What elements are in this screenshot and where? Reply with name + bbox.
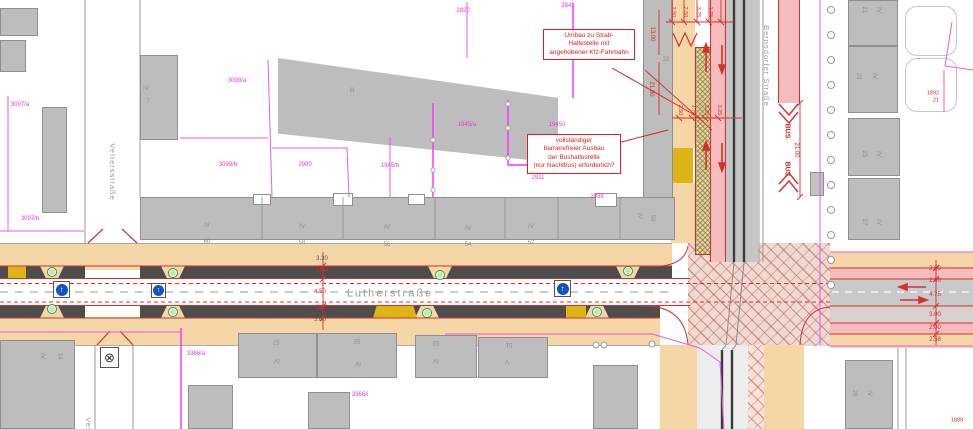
sidewalk-east-south [830, 334, 973, 348]
tree-ring [827, 156, 835, 164]
building [415, 335, 477, 378]
building-storeys: IV [274, 357, 280, 363]
dim-label: 2.00 [316, 305, 328, 311]
building-number: 23 [855, 73, 861, 80]
building-storeys: IV [433, 357, 439, 363]
building-number: 25 [861, 151, 867, 158]
building-number: 7 [146, 99, 149, 105]
building-number: 54 [465, 242, 472, 248]
building-notch [253, 194, 271, 205]
building-storeys: IV [875, 151, 881, 157]
dim-label: 21.00 [648, 81, 654, 96]
bus-shelter [810, 172, 824, 196]
parcel-label: 3097/b [21, 216, 39, 222]
dim-label-bus-length: 21.00 [793, 142, 799, 157]
building-number: 50 [649, 215, 655, 222]
building [0, 8, 38, 36]
dim-label: 3.00 [929, 312, 941, 318]
sidewalk-south-leg-east [764, 345, 804, 429]
tree-ring [827, 81, 835, 89]
annotation-line: Haltestelle mit [547, 40, 631, 48]
building [593, 365, 638, 429]
building [848, 0, 898, 46]
tree [168, 268, 178, 278]
annotation-line: vollständiger [531, 137, 617, 145]
courtyard-path [905, 58, 957, 112]
dim-label: 2.50 [676, 105, 682, 116]
tram-lane [710, 0, 726, 262]
shared-path-icon: ↑ [557, 283, 569, 295]
building-storeys: IV [204, 223, 210, 229]
dim-label: 1.70 [689, 105, 695, 116]
roadway-south-leg [697, 345, 748, 429]
building-number: 27 [861, 219, 867, 226]
building-number: 60 [204, 239, 211, 245]
courtyard-path [905, 6, 957, 56]
parcel-label: 2900 [298, 162, 311, 168]
street-name-lutherstrasse: Lutherstraße [347, 289, 433, 300]
street-name-vettersstrasse: Vettersstraße [108, 143, 116, 201]
parcel-label: 2838 [590, 194, 603, 200]
sidewalk-south-leg-west [660, 345, 697, 429]
traffic-sign-shared-path: ↑ [53, 281, 70, 298]
parcel-label: 2820 [456, 8, 469, 14]
building-storeys: IV [866, 390, 872, 396]
building-number: 56 [384, 242, 391, 248]
parcel-label-red: 21 [933, 98, 939, 104]
building-number: 29 [851, 390, 857, 397]
tree-ring [827, 256, 835, 264]
parcel-label: 1945/i [549, 122, 565, 128]
tree [47, 304, 57, 314]
tactile-paving [8, 266, 26, 278]
tree-ring [827, 56, 835, 64]
tactile-paving [373, 306, 417, 318]
building-storeys: IV [39, 353, 45, 359]
parcel-label: 1945/b [381, 163, 399, 169]
building-number: 58 [299, 240, 306, 246]
traffic-sign-shared-path: ↑ [151, 283, 166, 298]
parcel-label: 2911 [532, 175, 545, 181]
traffic-sign-shared-path: ↑ [554, 280, 571, 297]
building [188, 385, 233, 429]
building-number: 57 [273, 338, 280, 344]
annotation-bus-stop: vollständiger barrierefreier Ausbau der … [527, 134, 621, 174]
dim-label: 2.50 [681, 7, 687, 18]
building-storeys: IV [299, 224, 305, 230]
tree-ring [827, 281, 835, 289]
tree-ring [827, 231, 835, 239]
building-storeys: IV [636, 213, 642, 219]
building-storeys: IV [384, 225, 390, 231]
dim-label: 4.75 [929, 292, 941, 298]
band-east-mid [830, 306, 973, 323]
tree-ring [593, 342, 600, 349]
parcel-label: 1945/a [458, 122, 476, 128]
tree [592, 307, 602, 317]
building [478, 337, 548, 378]
street-name-vettersstrasse-south: Vettersstraße [84, 417, 92, 429]
building [42, 107, 67, 213]
dim-label: 3.60 [314, 317, 326, 323]
parcel-label: 3366/a [187, 351, 205, 357]
building-corner [643, 0, 673, 198]
tram-roadway [726, 0, 758, 262]
tree-ring [827, 181, 835, 189]
shared-path-icon: ↑ [153, 285, 164, 296]
building-notch [408, 194, 425, 205]
building-number: 14 [56, 353, 62, 360]
building [308, 392, 350, 429]
sidewalk-corner-west [671, 0, 695, 148]
tree-ring [649, 341, 656, 348]
sidewalk-east-north [830, 252, 973, 268]
tree-ring [827, 106, 835, 114]
building-number: 51 [506, 341, 513, 347]
parcel-number: 22 [663, 57, 670, 63]
building-storeys: IV [143, 86, 149, 92]
tree [168, 307, 178, 317]
parcel-label-red: 1892 [927, 91, 939, 97]
dim-label: 1.75 [706, 7, 712, 18]
site-plan-canvas: Lutherstraße Vettersstraße Vettersstraße… [0, 0, 973, 429]
building-storeys: IV [355, 360, 361, 366]
dim-label: 2.50 [669, 7, 675, 18]
street-name-bernsdorfer: Bernsdorfer Straße [762, 25, 770, 107]
dim-label: 2.00 [316, 268, 328, 274]
traffic-sign-no-stopping: ⊗ [100, 347, 119, 368]
annotation-line: (nur Nachtbus) erforderlich? [531, 162, 617, 170]
building-storeys: IV [875, 7, 881, 13]
tactile-paving [566, 306, 586, 318]
parcel-label-red: 1889 [951, 418, 963, 424]
tree [422, 308, 432, 318]
building-storeys: V [505, 358, 509, 364]
tree-ring [601, 342, 608, 349]
building-number: 52 [528, 240, 535, 246]
dim-label: 2.50 [929, 266, 941, 272]
bus-lane [778, 0, 800, 103]
annotation-line: angehobener Kfz-Fahrbahn [547, 49, 631, 57]
building-number: 55 [354, 337, 361, 343]
building-storeys: IV [528, 224, 534, 230]
roadway-east [830, 279, 973, 306]
tree-ring [827, 31, 835, 39]
building [0, 40, 26, 72]
parking-strip [140, 266, 672, 278]
building [848, 118, 900, 176]
building [848, 178, 900, 240]
bus-marking: BUS [784, 124, 791, 139]
dim-label: 3.25 [694, 7, 700, 18]
annotation-line: barrierefreier Ausbau [531, 145, 617, 153]
parcel-label: 3097/a [11, 102, 29, 108]
dim-label: 2.00 [929, 278, 941, 284]
dim-label: 2.00 [929, 325, 941, 331]
bus-marking: BUS [784, 162, 791, 177]
no-stopping-icon: ⊗ [104, 350, 115, 366]
building [0, 340, 75, 429]
dim-label: 3.25 [702, 105, 708, 116]
annotation-line: der Bushaltestelle [531, 154, 617, 162]
dim-label: 3.25 [715, 105, 721, 116]
parcel-label: 3099/b [219, 162, 237, 168]
shared-path-icon: ↑ [56, 284, 68, 296]
building-storeys: IV [465, 226, 471, 232]
dim-label: 2.58 [929, 337, 941, 343]
marking-hatch-south [748, 345, 764, 429]
lane-east-north [830, 268, 973, 279]
dim-label: 4.50 [314, 289, 326, 295]
parcel-label: 3099/a [228, 78, 246, 84]
tree [435, 270, 445, 280]
building [140, 55, 178, 140]
building-storeys: IV [871, 73, 877, 79]
parcel-label: 2841 [561, 3, 574, 9]
tree-ring [827, 206, 835, 214]
tree [623, 266, 633, 276]
dim-label: 13.00 [649, 26, 655, 41]
building-number: 53 [433, 339, 440, 345]
tree-ring [827, 6, 835, 14]
dim-label: 3.30 [316, 256, 328, 262]
tree [47, 267, 57, 277]
tree-ring [827, 131, 835, 139]
tactile-paving [672, 148, 693, 183]
building-storeys: IV [875, 219, 881, 225]
building-storeys: III [349, 88, 354, 94]
parcel-label: 3366/i [352, 392, 368, 398]
lane-east-south [830, 323, 973, 334]
annotation-line: Umbau zu Strab- [547, 32, 631, 40]
building-big [278, 58, 558, 163]
annotation-tram-stop: Umbau zu Strab- Haltestelle mit angehobe… [543, 29, 635, 60]
building-notch [333, 193, 353, 206]
building-number: 21 [861, 7, 867, 14]
